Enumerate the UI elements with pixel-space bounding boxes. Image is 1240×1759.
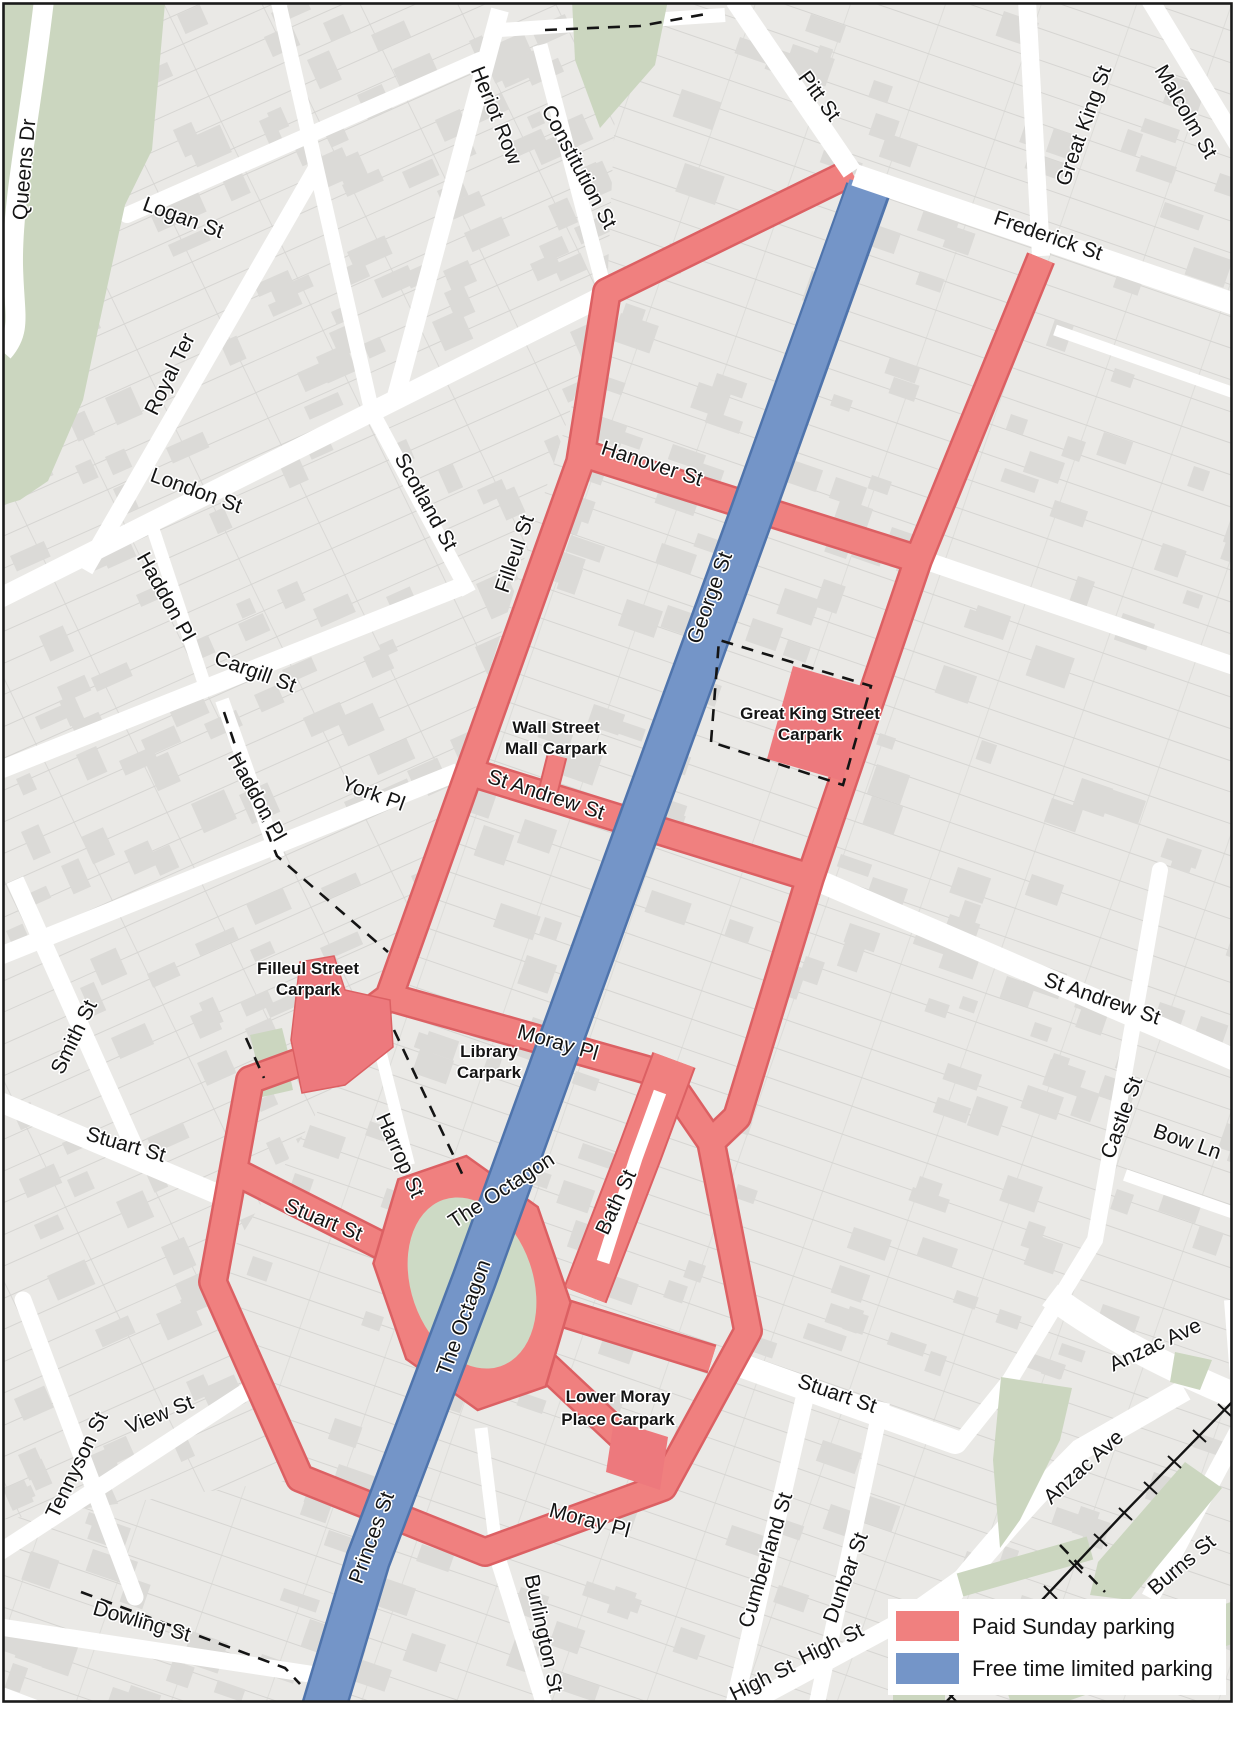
svg-text:Free time limited parking: Free time limited parking	[972, 1656, 1213, 1681]
svg-text:Wall Street: Wall Street	[512, 718, 600, 737]
svg-text:Library: Library	[460, 1042, 518, 1061]
svg-text:Carpark: Carpark	[457, 1063, 522, 1082]
svg-text:Carpark: Carpark	[778, 725, 843, 744]
svg-text:Mall Carpark: Mall Carpark	[505, 739, 608, 758]
svg-text:Filleul Street: Filleul Street	[257, 959, 359, 978]
svg-text:Paid Sunday parking: Paid Sunday parking	[972, 1614, 1175, 1639]
svg-text:Place Carpark: Place Carpark	[561, 1410, 675, 1429]
svg-text:Great King Street: Great King Street	[740, 704, 880, 723]
svg-text:Lower Moray: Lower Moray	[566, 1387, 671, 1406]
svg-text:Carpark: Carpark	[276, 980, 341, 999]
